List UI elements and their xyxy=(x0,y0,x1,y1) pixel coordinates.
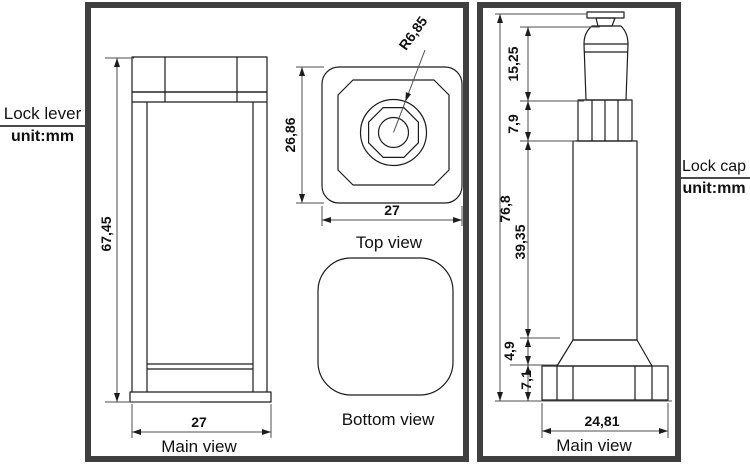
lock-cap-title: Lock cap xyxy=(678,158,750,179)
dim-cap-flange-value: 7,1 xyxy=(518,370,534,390)
bottom-view-caption: Bottom view xyxy=(342,410,435,429)
cap-main-view-caption: Main view xyxy=(556,436,632,455)
lock-lever-panel: 67,45 27 Main view R6 xyxy=(85,2,469,462)
lever-base-plate xyxy=(130,392,271,402)
dim-top-view-height: 26,86 xyxy=(282,67,324,203)
dim-cap-thread-value: 7,9 xyxy=(505,114,521,134)
cap-neck xyxy=(596,18,615,26)
lock-lever-main-view: 67,45 27 Main view xyxy=(98,57,271,456)
dim-top-view-width-value: 27 xyxy=(384,202,400,218)
lock-lever-title: Lock lever xyxy=(0,104,85,127)
lock-cap-unit: unit:mm xyxy=(678,179,750,198)
lock-cap-main-view: 76,8 15,25 7,9 xyxy=(495,12,672,455)
dim-cap-knob-value: 15,25 xyxy=(505,46,521,81)
bottom-view-outline xyxy=(318,258,453,395)
lock-lever-label: Lock lever unit:mm xyxy=(0,104,85,146)
cap-flange xyxy=(542,366,668,400)
dim-cap-width-value: 24,81 xyxy=(584,413,619,429)
dim-cap-body-value: 39,35 xyxy=(512,224,528,259)
cap-cylinder-body xyxy=(573,141,637,340)
dim-cap-taper-value: 4,9 xyxy=(501,341,517,361)
cap-knob xyxy=(584,26,628,100)
lever-cap-band xyxy=(132,92,267,102)
lock-lever-bottom-view: Bottom view xyxy=(318,258,453,429)
cap-flare xyxy=(557,340,652,366)
lock-cap-label: Lock cap unit:mm xyxy=(678,158,750,198)
dim-top-view-radius-value: R6,85 xyxy=(396,13,431,53)
lock-cap-drawing: 76,8 15,25 7,9 xyxy=(483,8,675,456)
lock-lever-top-view: R6,85 26,86 27 Top view xyxy=(282,13,462,252)
dim-lever-width-value: 27 xyxy=(191,414,207,430)
dim-top-view-height-value: 26,86 xyxy=(282,117,298,152)
dim-cap-width: 24,81 xyxy=(542,403,668,438)
dim-lever-width: 27 xyxy=(132,404,271,438)
cap-top-disc xyxy=(587,12,624,18)
dim-cap-overall-value: 76,8 xyxy=(497,195,513,222)
dim-lever-height-value: 67,45 xyxy=(98,216,114,251)
lock-lever-unit: unit:mm xyxy=(0,127,85,146)
dim-top-view-radius: R6,85 xyxy=(394,13,431,132)
lock-lever-drawing: 67,45 27 Main view R6 xyxy=(91,8,463,456)
dim-top-view-width: 27 xyxy=(322,202,462,226)
lock-cap-panel: 76,8 15,25 7,9 xyxy=(477,2,681,462)
lever-main-view-caption: Main view xyxy=(161,437,237,456)
lever-cap-outline xyxy=(132,57,267,92)
dim-lever-height: 67,45 xyxy=(98,58,200,402)
top-view-caption: Top view xyxy=(356,233,423,252)
